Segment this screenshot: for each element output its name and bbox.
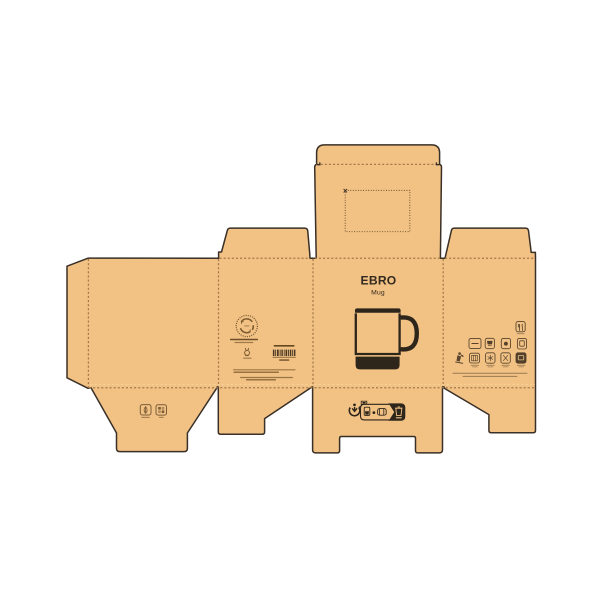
svg-text:EBRO: EBRO: [361, 273, 397, 287]
svg-text:Mug: Mug: [371, 290, 385, 297]
